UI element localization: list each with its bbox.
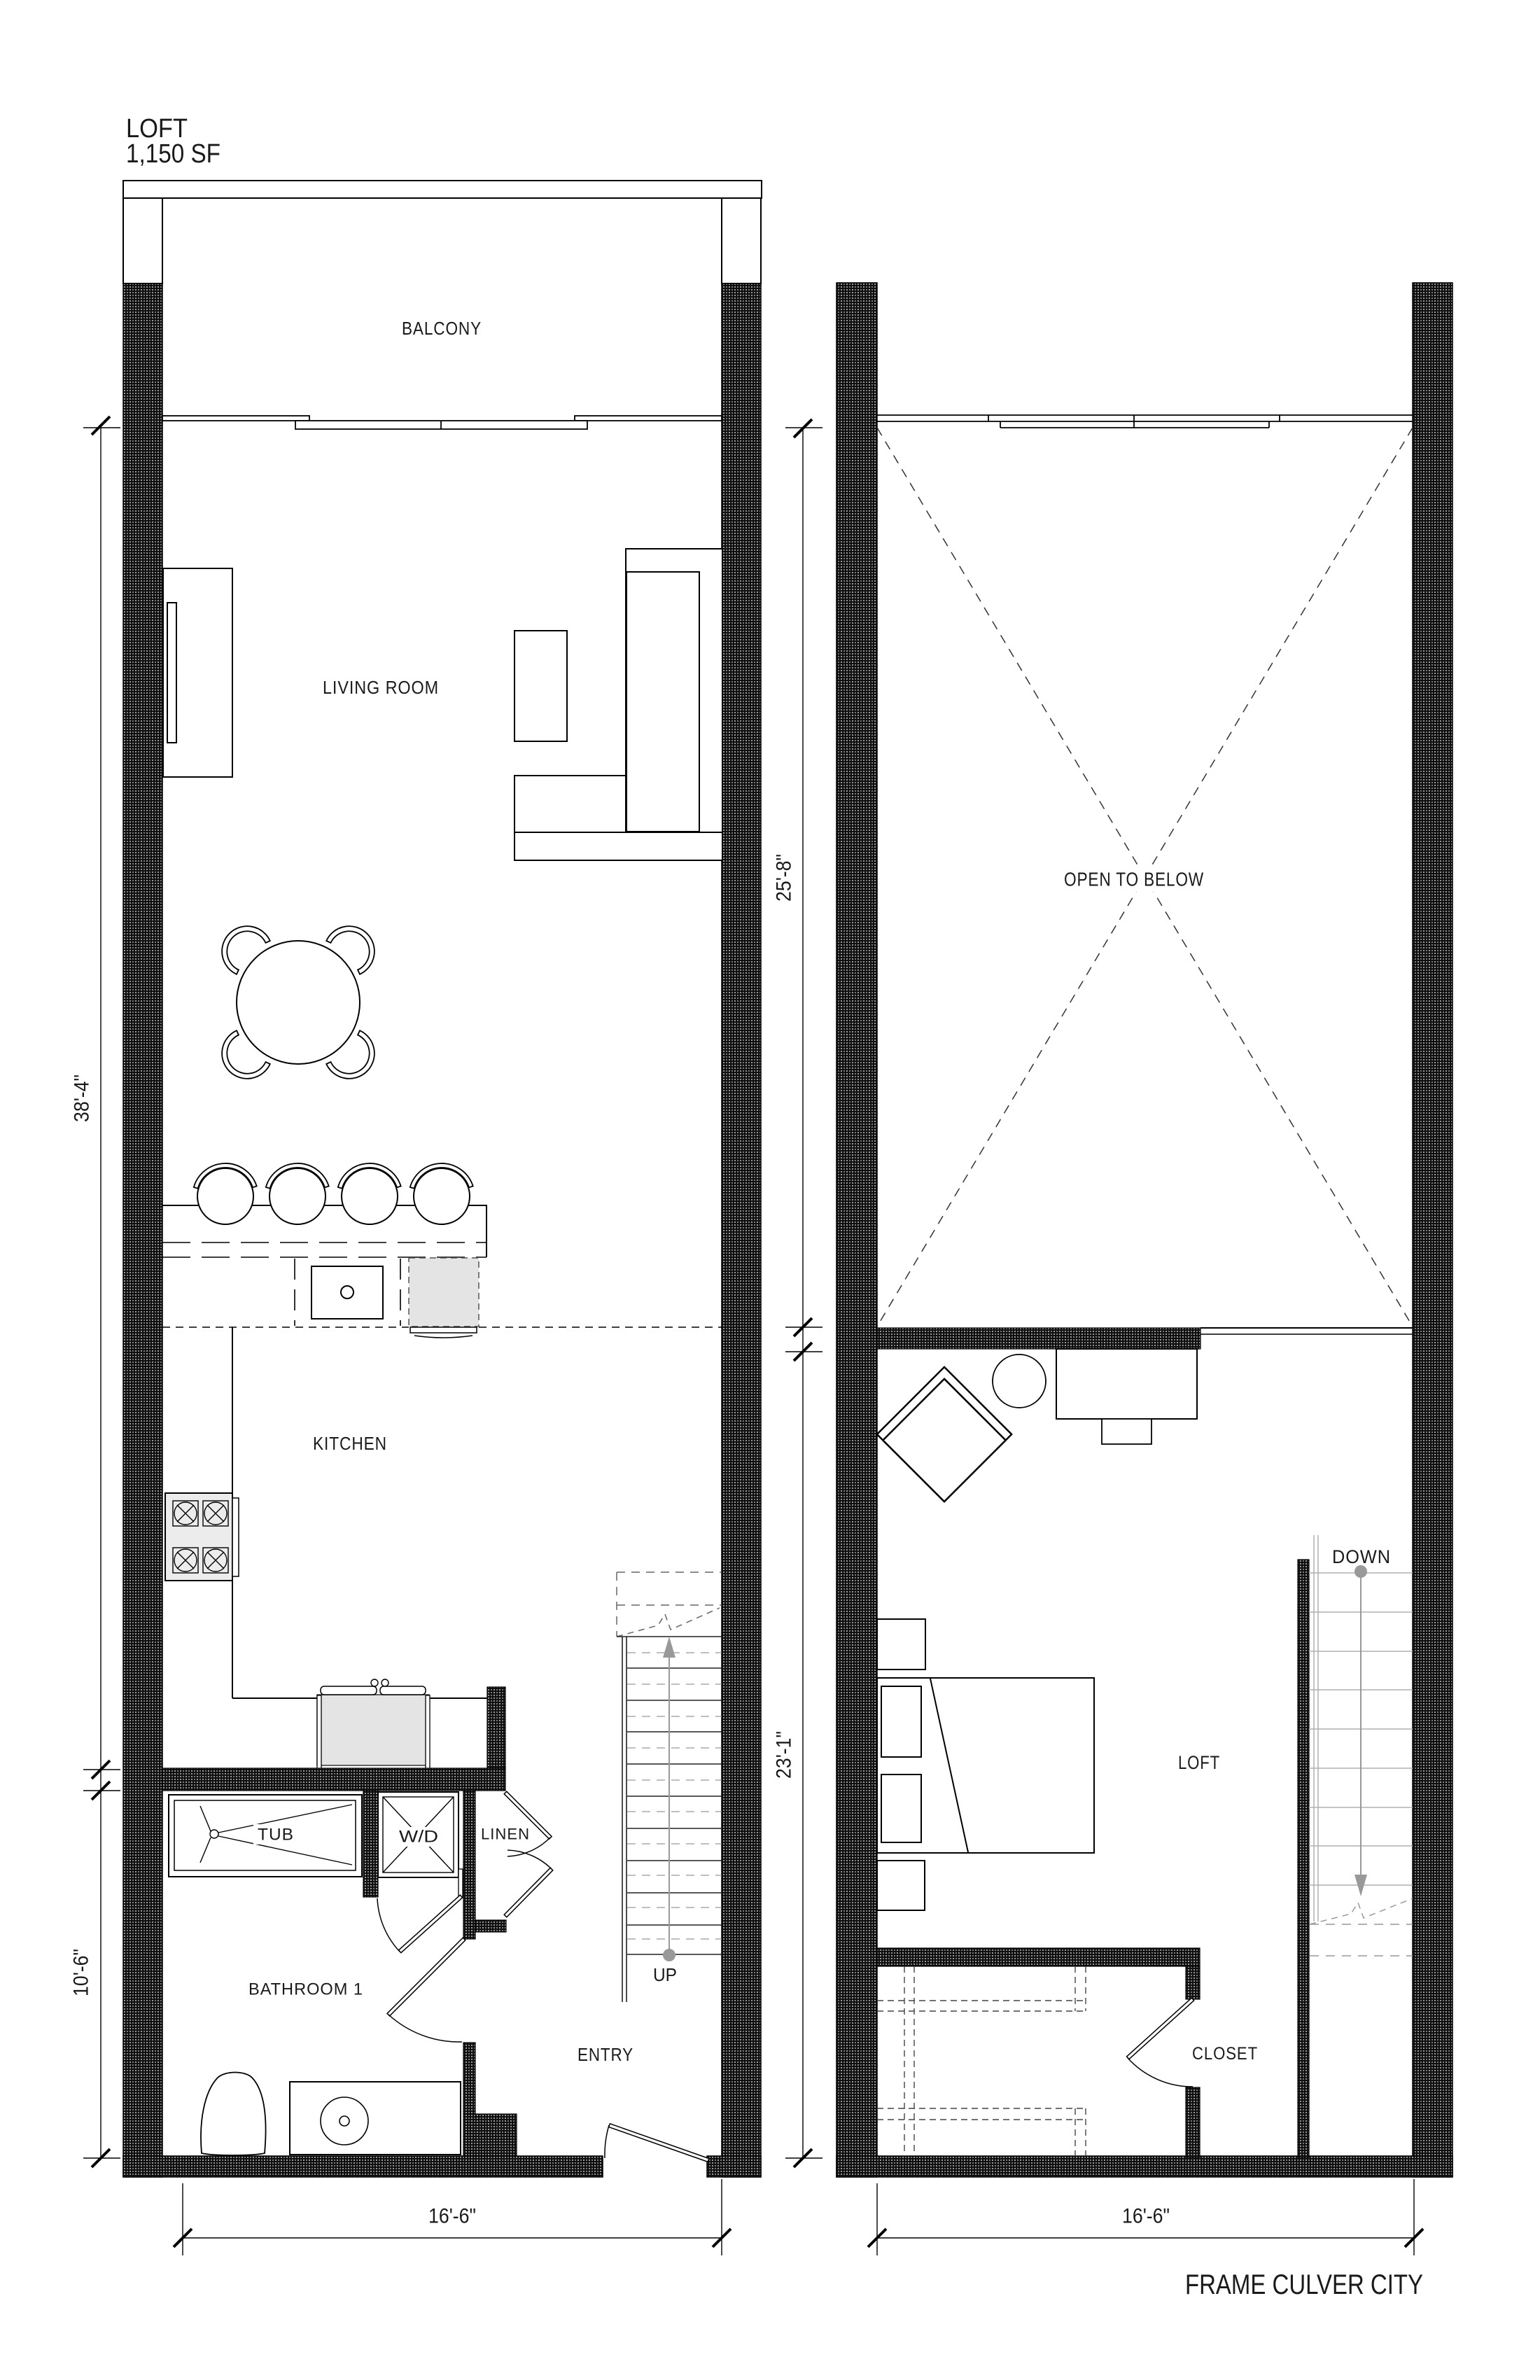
svg-text:10'-6": 10'-6": [70, 1949, 93, 1996]
svg-text:UP: UP: [653, 1964, 677, 1985]
svg-text:ENTRY: ENTRY: [577, 2044, 633, 2065]
svg-text:FRAME CULVER CITY: FRAME CULVER CITY: [1185, 2269, 1423, 2300]
svg-text:W/D: W/D: [399, 1828, 438, 1847]
svg-text:OPEN TO BELOW: OPEN TO BELOW: [1064, 869, 1204, 890]
svg-text:BALCONY: BALCONY: [402, 318, 482, 339]
svg-text:TUB: TUB: [258, 1826, 294, 1844]
svg-text:16'-6": 16'-6": [428, 2205, 476, 2228]
svg-text:KITCHEN: KITCHEN: [313, 1433, 387, 1454]
svg-text:1,150 SF: 1,150 SF: [126, 139, 220, 169]
svg-text:CLOSET: CLOSET: [1192, 2044, 1258, 2064]
svg-text:BATHROOM 1: BATHROOM 1: [248, 1980, 363, 1999]
svg-text:DOWN: DOWN: [1332, 1546, 1391, 1567]
svg-text:25'-8": 25'-8": [773, 854, 796, 902]
svg-text:LIVING ROOM: LIVING ROOM: [323, 677, 439, 698]
svg-text:LOFT: LOFT: [1178, 1752, 1220, 1773]
svg-text:LINEN: LINEN: [481, 1826, 530, 1843]
svg-text:16'-6": 16'-6": [1122, 2205, 1170, 2228]
svg-text:23'-1": 23'-1": [773, 1731, 796, 1779]
svg-text:38'-4": 38'-4": [71, 1074, 94, 1122]
